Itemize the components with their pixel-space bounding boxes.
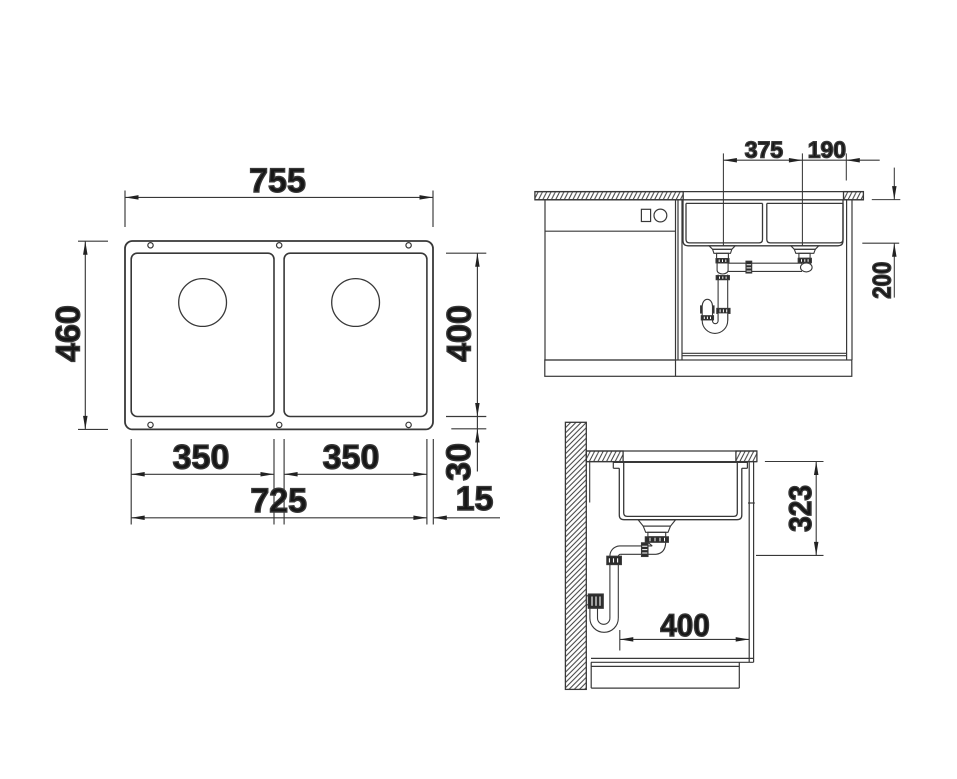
svg-text:755: 755 xyxy=(249,162,306,200)
svg-text:725: 725 xyxy=(250,482,307,520)
svg-text:375: 375 xyxy=(745,136,784,162)
svg-text:15: 15 xyxy=(456,480,494,518)
svg-text:400: 400 xyxy=(660,607,710,643)
svg-text:323: 323 xyxy=(782,485,818,532)
svg-text:350: 350 xyxy=(323,439,380,477)
svg-text:190: 190 xyxy=(808,136,846,162)
svg-text:460: 460 xyxy=(50,305,88,362)
svg-text:400: 400 xyxy=(441,305,479,362)
svg-text:30: 30 xyxy=(440,443,478,481)
svg-text:200: 200 xyxy=(869,262,897,299)
svg-text:350: 350 xyxy=(173,439,230,477)
